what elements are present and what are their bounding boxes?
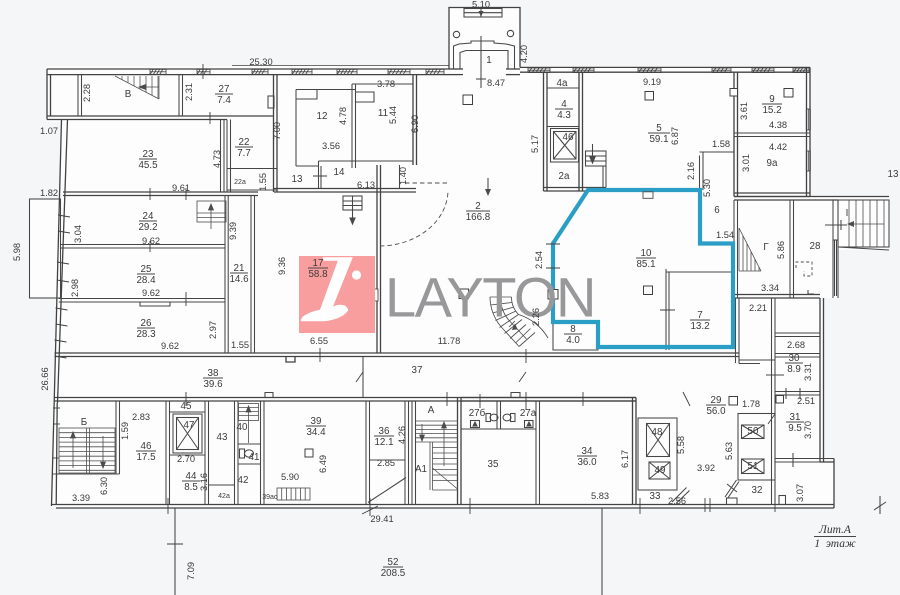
svg-text:26.66: 26.66	[40, 367, 50, 390]
svg-text:8.5: 8.5	[184, 482, 198, 493]
svg-text:2.85: 2.85	[377, 458, 395, 468]
svg-text:6.87: 6.87	[670, 127, 680, 145]
svg-text:5.17: 5.17	[530, 135, 540, 153]
svg-text:35: 35	[488, 459, 499, 470]
svg-text:6.13: 6.13	[357, 180, 375, 190]
svg-text:LAYTON: LAYTON	[385, 266, 595, 329]
svg-text:3.61: 3.61	[739, 102, 749, 120]
svg-text:13: 13	[292, 174, 303, 185]
svg-text:5.30: 5.30	[702, 179, 712, 197]
svg-text:2a: 2a	[559, 171, 570, 182]
svg-text:2.68: 2.68	[787, 340, 805, 350]
svg-text:2.51: 2.51	[797, 396, 815, 406]
svg-text:2.54: 2.54	[534, 251, 544, 269]
svg-text:8: 8	[570, 324, 576, 335]
svg-text:В: В	[125, 89, 132, 100]
svg-text:7: 7	[697, 310, 702, 321]
svg-text:2.28: 2.28	[82, 84, 92, 102]
svg-text:5.44: 5.44	[388, 106, 398, 124]
svg-text:24: 24	[143, 211, 154, 222]
svg-text:52: 52	[388, 557, 399, 568]
svg-text:44: 44	[186, 471, 197, 482]
svg-text:11: 11	[378, 108, 388, 119]
svg-text:39aо: 39aо	[262, 494, 278, 501]
svg-text:26: 26	[141, 318, 152, 329]
svg-text:27: 27	[219, 84, 230, 95]
svg-text:36: 36	[379, 426, 390, 437]
svg-text:27б: 27б	[469, 408, 486, 419]
svg-text:3.92: 3.92	[697, 463, 715, 473]
svg-text:7.00: 7.00	[272, 122, 282, 140]
svg-text:3.04: 3.04	[73, 225, 83, 243]
svg-text:9a: 9a	[767, 158, 778, 169]
svg-text:9.61: 9.61	[172, 183, 190, 193]
svg-text:58.8: 58.8	[308, 269, 328, 280]
svg-text:45.5: 45.5	[138, 160, 158, 171]
svg-text:8.47: 8.47	[487, 78, 505, 88]
svg-text:3.31: 3.31	[803, 363, 813, 381]
svg-text:1.40: 1.40	[398, 167, 408, 185]
svg-text:3.70: 3.70	[803, 421, 813, 439]
svg-text:9.19: 9.19	[643, 77, 661, 87]
svg-text:6.55: 6.55	[310, 336, 328, 346]
svg-text:А: А	[428, 405, 435, 416]
svg-text:1.82: 1.82	[40, 188, 58, 198]
svg-text:5.90: 5.90	[281, 472, 299, 482]
svg-text:34.4: 34.4	[306, 427, 326, 438]
svg-text:25.30: 25.30	[249, 57, 272, 67]
svg-text:27a: 27a	[520, 408, 537, 419]
svg-text:166.8: 166.8	[466, 212, 491, 223]
svg-text:2.21: 2.21	[749, 303, 767, 313]
svg-text:12.1: 12.1	[374, 437, 393, 448]
svg-text:2.31: 2.31	[184, 83, 194, 101]
svg-text:33: 33	[650, 491, 661, 502]
svg-text:6.49: 6.49	[318, 455, 328, 473]
svg-text:14.6: 14.6	[229, 274, 249, 285]
svg-text:28: 28	[810, 241, 821, 252]
svg-text:15.2: 15.2	[762, 105, 781, 116]
svg-text:1.55: 1.55	[258, 173, 268, 191]
svg-text:12: 12	[317, 111, 328, 122]
svg-text:13: 13	[888, 169, 899, 180]
svg-text:Б: Б	[81, 417, 87, 428]
svg-text:7.09: 7.09	[186, 562, 196, 580]
svg-text:2.70: 2.70	[177, 454, 195, 464]
svg-text:28.3: 28.3	[136, 329, 156, 340]
svg-text:39.6: 39.6	[203, 379, 223, 390]
svg-text:46: 46	[563, 132, 574, 143]
svg-text:2.26: 2.26	[531, 308, 541, 326]
svg-text:47: 47	[184, 420, 195, 431]
svg-text:22: 22	[239, 137, 250, 148]
svg-text:7.4: 7.4	[217, 95, 231, 106]
svg-text:30: 30	[789, 353, 800, 364]
svg-text:28.4: 28.4	[136, 275, 156, 286]
svg-text:2.16: 2.16	[686, 162, 696, 180]
svg-text:59.1: 59.1	[649, 134, 668, 145]
svg-text:1.58: 1.58	[712, 139, 730, 149]
svg-text:6.17: 6.17	[620, 450, 630, 468]
svg-text:Г: Г	[763, 242, 769, 253]
svg-text:29: 29	[711, 395, 722, 406]
svg-text:4.3: 4.3	[557, 110, 571, 121]
svg-text:50: 50	[748, 426, 759, 437]
svg-text:I: I	[846, 208, 849, 219]
svg-text:208.5: 208.5	[381, 568, 406, 579]
svg-text:21: 21	[234, 263, 245, 274]
svg-text:5.86: 5.86	[776, 241, 786, 259]
svg-text:4.78: 4.78	[338, 107, 348, 125]
svg-text:1: 1	[486, 55, 491, 66]
svg-text:38: 38	[208, 368, 219, 379]
svg-text:42a: 42a	[218, 493, 230, 500]
svg-text:1 этаж: 1 этаж	[814, 538, 856, 550]
svg-text:25: 25	[141, 264, 152, 275]
svg-text:3.07: 3.07	[795, 484, 805, 502]
svg-text:36.0: 36.0	[577, 457, 597, 468]
svg-text:29.41: 29.41	[370, 514, 393, 524]
svg-text:3.16: 3.16	[199, 473, 209, 491]
svg-text:4.26: 4.26	[397, 426, 407, 444]
svg-text:5.83: 5.83	[591, 491, 609, 501]
svg-text:4.73: 4.73	[212, 150, 222, 168]
svg-text:5: 5	[656, 123, 662, 134]
svg-text:32: 32	[752, 485, 763, 496]
svg-text:5.63: 5.63	[724, 442, 734, 460]
svg-text:56.0: 56.0	[706, 406, 726, 417]
svg-text:1.07: 1.07	[40, 126, 58, 136]
svg-text:3.34: 3.34	[761, 283, 779, 293]
svg-text:4.0: 4.0	[566, 335, 580, 346]
svg-text:40: 40	[237, 422, 248, 433]
svg-text:48: 48	[652, 427, 663, 438]
svg-text:9.36: 9.36	[277, 257, 287, 275]
svg-text:31: 31	[790, 412, 801, 423]
svg-text:10: 10	[641, 248, 652, 259]
svg-text:11.78: 11.78	[438, 336, 461, 346]
svg-text:А1: А1	[415, 464, 427, 475]
svg-text:17.5: 17.5	[136, 452, 156, 463]
svg-text:13.2: 13.2	[690, 321, 709, 332]
svg-text:2: 2	[475, 201, 480, 212]
svg-text:4.38: 4.38	[769, 120, 787, 130]
svg-text:3.01: 3.01	[741, 154, 751, 172]
svg-text:9.5: 9.5	[788, 423, 802, 434]
svg-text:9.62: 9.62	[142, 236, 160, 246]
svg-text:2.56: 2.56	[668, 496, 686, 506]
svg-text:4.42: 4.42	[769, 142, 787, 152]
svg-text:7.7: 7.7	[237, 148, 251, 159]
svg-text:8.9: 8.9	[787, 364, 801, 375]
svg-text:5.98: 5.98	[12, 243, 22, 261]
svg-text:3.78: 3.78	[377, 79, 395, 89]
svg-text:9.39: 9.39	[228, 222, 238, 240]
svg-text:37: 37	[412, 365, 423, 376]
svg-text:6: 6	[714, 205, 720, 216]
svg-text:14: 14	[334, 167, 345, 178]
svg-text:Лит.А: Лит.А	[818, 524, 852, 536]
svg-text:2.98: 2.98	[70, 279, 80, 297]
svg-text:51: 51	[748, 461, 759, 472]
svg-text:22a: 22a	[234, 179, 246, 186]
svg-text:6.90: 6.90	[410, 115, 420, 133]
svg-text:45: 45	[181, 401, 192, 412]
svg-text:43: 43	[217, 432, 228, 443]
svg-text:4: 4	[561, 99, 567, 110]
svg-text:4.20: 4.20	[519, 45, 529, 63]
svg-text:41: 41	[249, 452, 260, 463]
svg-text:29.2: 29.2	[138, 222, 157, 233]
svg-text:6.30: 6.30	[99, 477, 109, 495]
svg-text:1.59: 1.59	[120, 422, 130, 440]
svg-text:42: 42	[238, 475, 249, 486]
svg-text:34: 34	[582, 446, 593, 457]
svg-text:9.62: 9.62	[142, 288, 160, 298]
svg-text:85.1: 85.1	[636, 259, 655, 270]
svg-text:9: 9	[769, 94, 774, 105]
svg-text:1.78: 1.78	[742, 399, 760, 409]
svg-text:3.39: 3.39	[72, 493, 90, 503]
svg-text:5.10: 5.10	[472, 0, 490, 10]
svg-text:39: 39	[311, 416, 322, 427]
svg-text:1.55: 1.55	[231, 340, 249, 350]
svg-text:4a: 4a	[557, 78, 568, 89]
svg-text:23: 23	[143, 149, 154, 160]
svg-text:3.56: 3.56	[322, 141, 340, 151]
svg-text:5.58: 5.58	[676, 436, 686, 454]
svg-text:46: 46	[141, 441, 152, 452]
svg-text:9.62: 9.62	[161, 341, 179, 351]
svg-text:17: 17	[313, 258, 324, 269]
svg-text:1.54: 1.54	[716, 230, 734, 240]
svg-text:2.83: 2.83	[132, 412, 150, 422]
svg-text:49: 49	[655, 465, 666, 476]
svg-text:2.97: 2.97	[208, 321, 218, 339]
